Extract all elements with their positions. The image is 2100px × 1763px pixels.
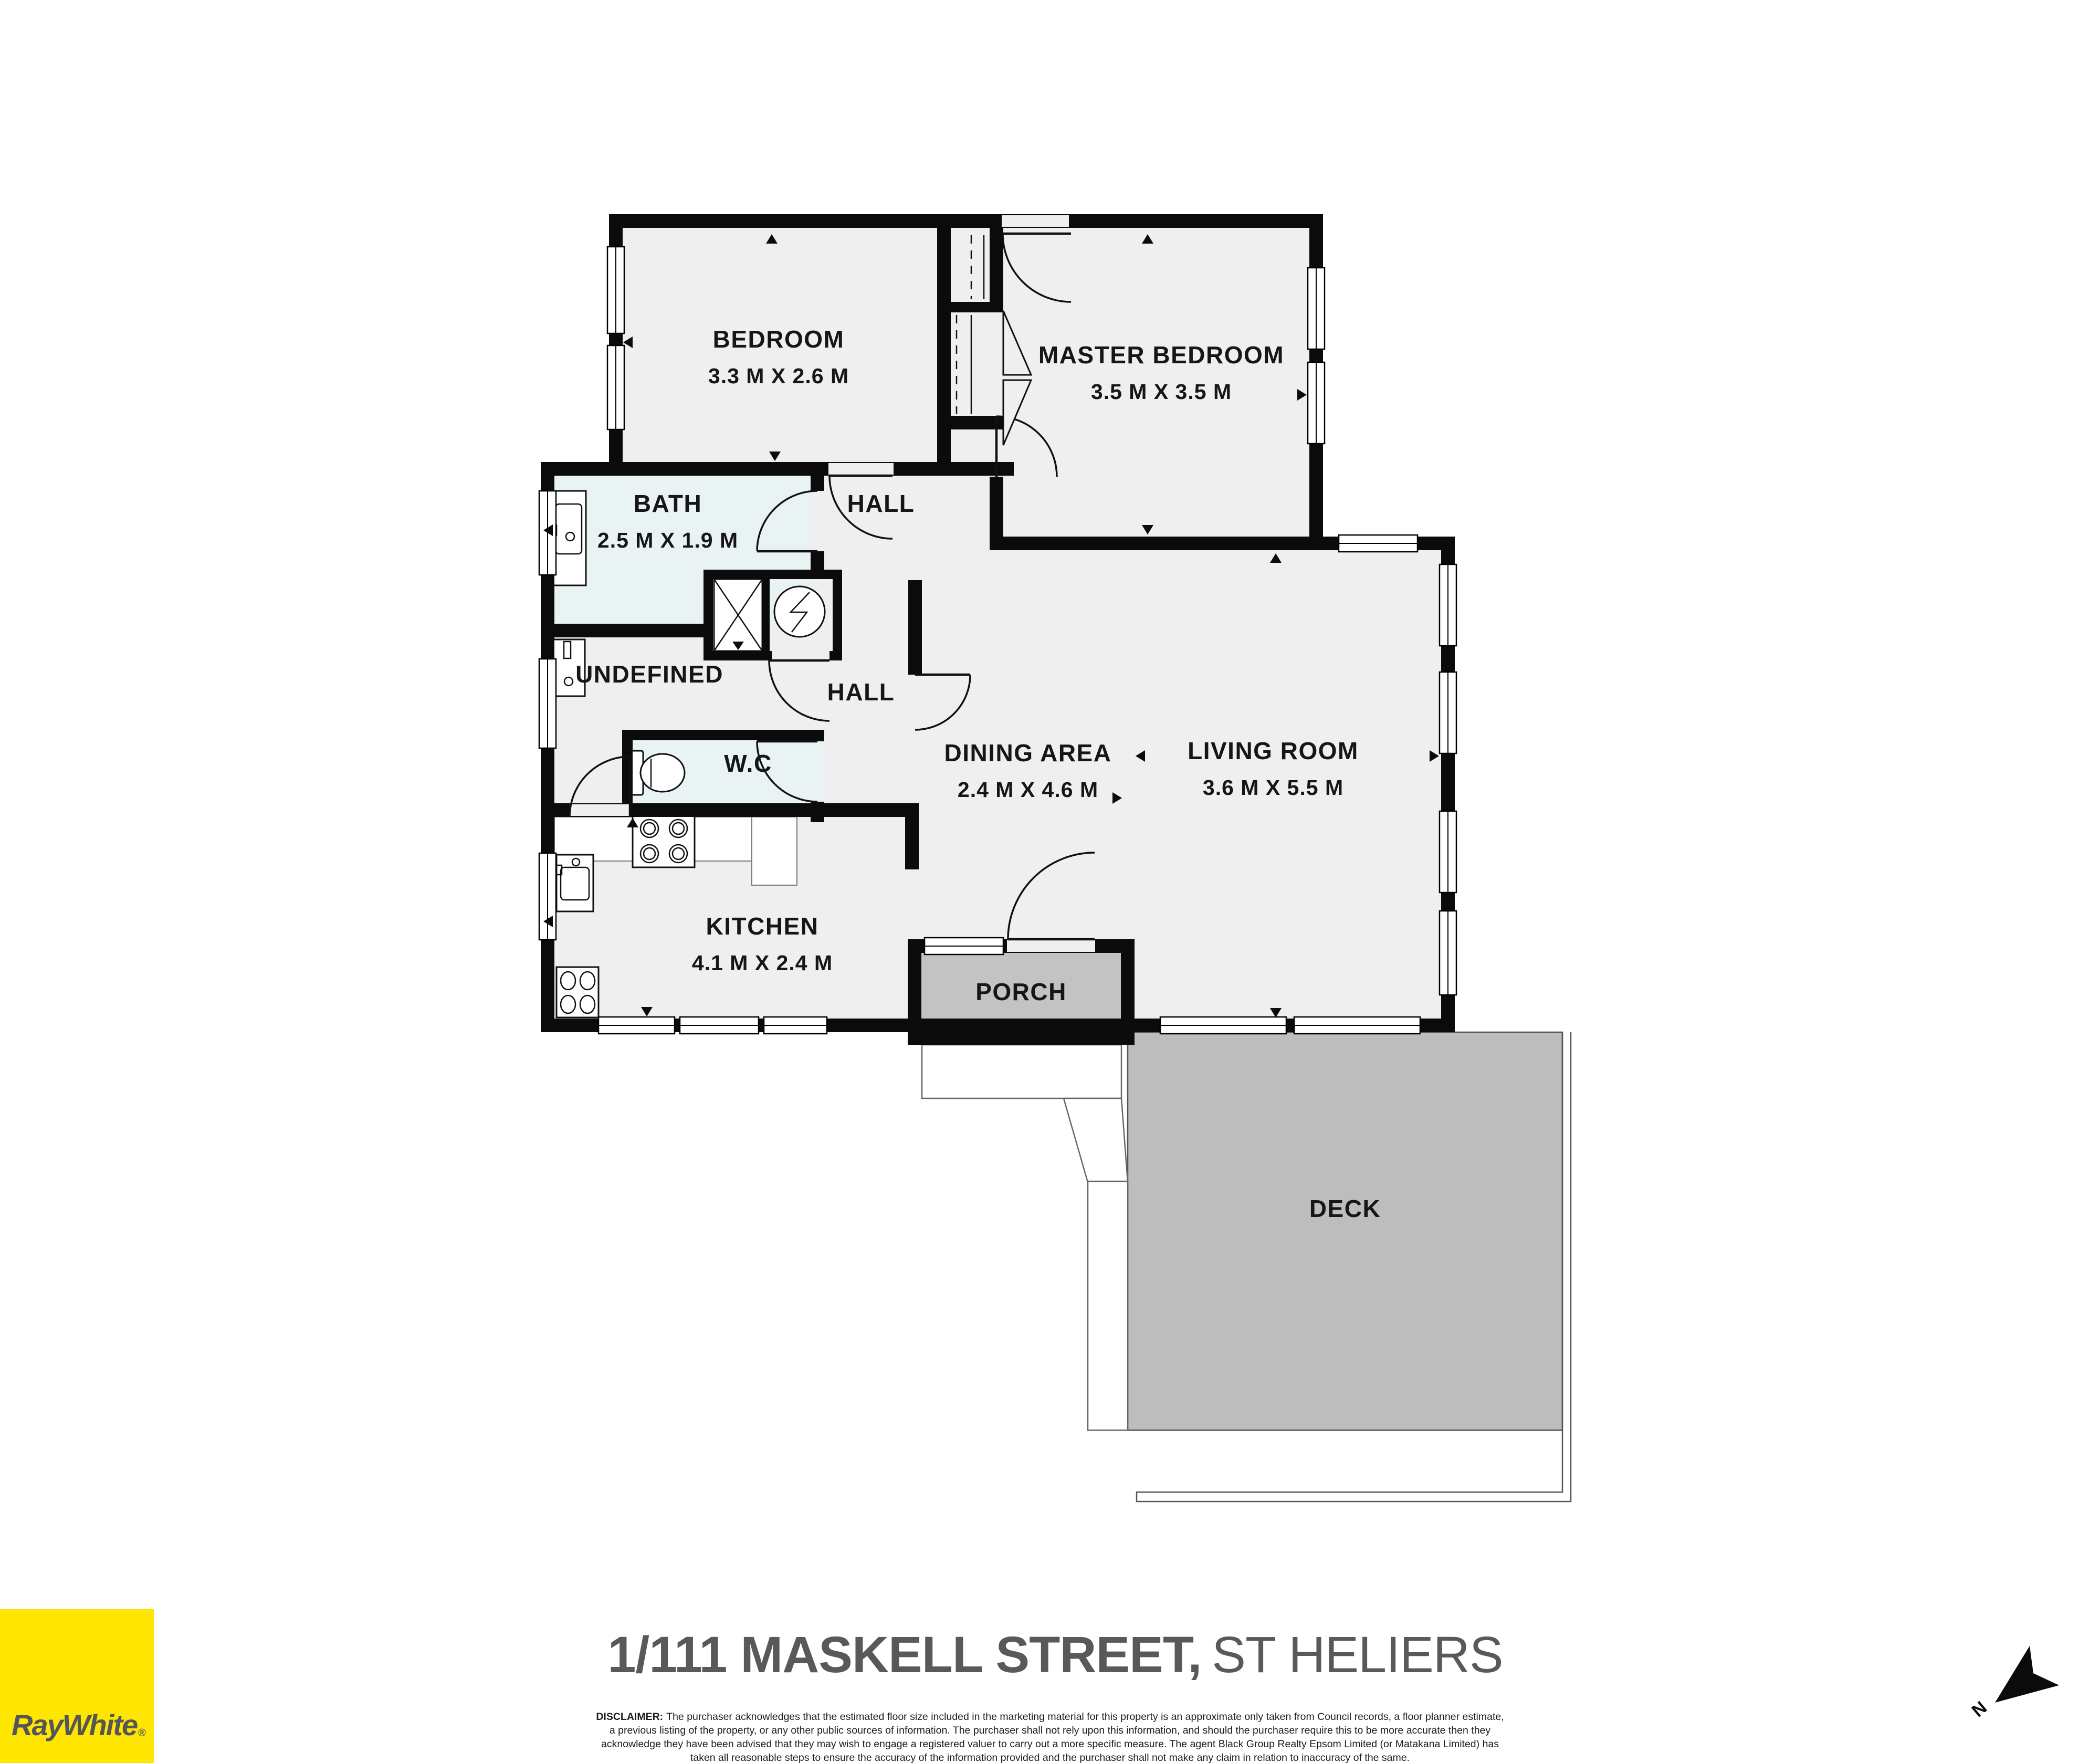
window: [598, 1017, 675, 1034]
deck-area: [922, 1032, 1571, 1502]
deck-step: [922, 1045, 1121, 1098]
title-suburb: ST HELIERS: [1212, 1626, 1503, 1683]
floorplan-page: BEDROOM 3.3 M X 2.6 M MASTER BEDROOM 3.5…: [0, 0, 2100, 1763]
room-dims-bath: 2.5 M X 1.9 M: [597, 528, 738, 552]
deck-path-diagonal: [1064, 1098, 1128, 1182]
window: [1308, 362, 1325, 444]
logo-wordmark: RayWhite®: [12, 1708, 146, 1741]
disclaimer-line-3: acknowledge they have been advised that …: [601, 1738, 1499, 1750]
north-arrow: N: [1968, 1646, 2059, 1721]
window: [1440, 811, 1456, 893]
room-dims-bedroom: 3.3 M X 2.6 M: [708, 364, 849, 388]
window: [680, 1017, 759, 1034]
floor-fills: [541, 214, 1441, 1032]
disclaimer-line-1: DISCLAIMER:The purchaser acknowledges th…: [596, 1711, 1504, 1723]
room-label-master-bedroom: MASTER BEDROOM: [1038, 341, 1284, 369]
page-title: 1/111 MASKELL STREET,ST HELIERS: [607, 1626, 1503, 1683]
room-label-hall-lower: HALL: [827, 678, 895, 706]
shower-icon: [714, 579, 762, 651]
room-label-wc: W.C: [724, 750, 772, 777]
window: [925, 938, 1003, 954]
room-label-deck: DECK: [1309, 1195, 1381, 1222]
room-label-living: LIVING ROOM: [1188, 737, 1359, 764]
window: [1308, 268, 1325, 349]
room-dims-living: 3.6 M X 5.5 M: [1203, 775, 1343, 800]
window: [607, 345, 624, 429]
kitchen-sink-icon: [553, 855, 593, 911]
north-label: N: [1968, 1697, 1991, 1721]
window: [539, 659, 556, 748]
raywhite-logo: RayWhite®: [0, 1609, 154, 1763]
window: [1440, 564, 1456, 646]
footer: 1/111 MASKELL STREET,ST HELIERS DISCLAIM…: [596, 1626, 1504, 1763]
disclaimer-line-4: taken all reasonable steps to ensure the…: [690, 1752, 1410, 1763]
floorplan-image: BEDROOM 3.3 M X 2.6 M MASTER BEDROOM 3.5…: [0, 0, 2100, 1763]
room-label-undefined: UNDEFINED: [575, 660, 723, 688]
room-dims-master-bedroom: 3.5 M X 3.5 M: [1091, 380, 1232, 404]
cylinder-icon: [774, 586, 825, 637]
oven-icon: [556, 967, 598, 1017]
toilet-icon: [629, 751, 685, 795]
room-label-bath: BATH: [634, 490, 702, 517]
room-label-hall-upper: HALL: [847, 490, 915, 517]
window: [539, 853, 556, 940]
window: [539, 491, 556, 575]
window: [764, 1017, 827, 1034]
title-address-bold: 1/111 MASKELL STREET,: [607, 1626, 1201, 1683]
room-label-kitchen: KITCHEN: [706, 912, 819, 940]
stove-icon: [633, 813, 695, 867]
deck-path: [1088, 1181, 1128, 1430]
window: [1440, 672, 1456, 753]
room-label-bedroom: BEDROOM: [713, 326, 845, 353]
disclaimer-line-2: a previous listing of the property, or a…: [610, 1725, 1491, 1736]
window: [607, 247, 624, 333]
room-label-porch: PORCH: [975, 978, 1067, 1005]
room-dims-dining: 2.4 M X 4.6 M: [958, 778, 1098, 802]
room-label-dining: DINING AREA: [944, 739, 1112, 767]
deck-floor: [1128, 1032, 1562, 1430]
north-arrow-icon: [1995, 1646, 2059, 1703]
window: [1160, 1017, 1286, 1034]
window: [1294, 1017, 1420, 1034]
window: [1339, 535, 1417, 552]
window: [1440, 911, 1456, 995]
room-dims-kitchen: 4.1 M X 2.4 M: [692, 951, 833, 975]
